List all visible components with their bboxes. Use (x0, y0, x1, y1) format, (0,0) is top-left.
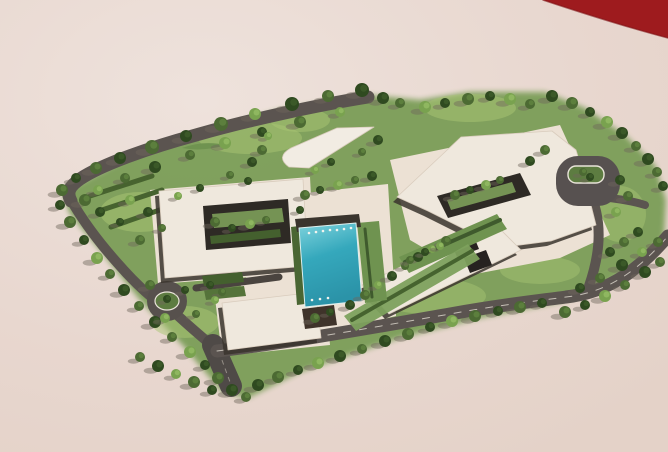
tree-highlight (662, 182, 667, 187)
tree-highlight (409, 257, 413, 261)
tree-highlight (659, 258, 664, 263)
site-plan-canvas (0, 0, 668, 452)
sunbed-dot (315, 231, 318, 234)
tree-highlight (83, 236, 88, 241)
tree-highlight (529, 157, 534, 162)
tree-highlight (267, 133, 271, 137)
tree-highlight (109, 270, 114, 275)
tree-highlight (61, 186, 67, 192)
tree-highlight (185, 132, 191, 138)
tree-highlight (245, 393, 250, 398)
tree-highlight (119, 219, 123, 223)
tree-highlight (229, 172, 233, 176)
tree-highlight (161, 225, 165, 229)
tree-highlight (619, 176, 624, 181)
tree-highlight (231, 386, 237, 392)
tree-highlight (361, 345, 366, 350)
tree-highlight (221, 289, 225, 293)
tree-highlight (497, 307, 502, 312)
tree-highlight (304, 191, 309, 196)
tree-highlight (429, 323, 434, 328)
tree-highlight (329, 309, 333, 313)
tree-highlight (489, 92, 494, 97)
tree-highlight (604, 292, 610, 298)
tree-highlight (354, 177, 358, 181)
tree-highlight (139, 236, 144, 241)
tree-highlight (589, 174, 593, 178)
sunbed-dot (327, 297, 330, 300)
sunbed-dot (350, 227, 353, 230)
tree-highlight (551, 92, 557, 98)
tree-highlight (96, 254, 102, 260)
tree-highlight (339, 108, 344, 113)
sunbed-dot (319, 298, 322, 301)
sunbed-dot (343, 228, 346, 231)
sunbed-dot (308, 232, 311, 235)
tree-highlight (474, 312, 480, 318)
tree-highlight (261, 146, 266, 151)
tree-highlight (59, 201, 64, 206)
tree-highlight (384, 337, 390, 343)
tree-highlight (150, 142, 157, 149)
tree-highlight (337, 181, 342, 186)
tree-highlight (382, 94, 388, 100)
master-plan-image (0, 0, 668, 452)
tree-highlight (485, 181, 490, 186)
tree-highlight (615, 208, 620, 213)
tree-highlight (123, 286, 129, 292)
tree-highlight (217, 374, 223, 380)
tree-highlight (467, 95, 473, 101)
tree-highlight (579, 284, 584, 289)
tree-highlight (175, 370, 180, 375)
tree-highlight (621, 129, 627, 135)
tree-highlight (361, 149, 365, 153)
sunbed-dot (329, 229, 332, 232)
tree-highlight (195, 311, 199, 315)
tree-highlight (249, 220, 254, 225)
tree-highlight (319, 187, 323, 191)
tree-highlight (371, 172, 376, 177)
tree-highlight (184, 287, 188, 291)
tree-highlight (99, 208, 104, 213)
tree-highlight (529, 100, 534, 105)
tree-highlight (424, 103, 430, 109)
tree-highlight (364, 291, 369, 296)
tree-highlight (95, 164, 101, 170)
tree-highlight (265, 217, 269, 221)
swimming-pool (299, 223, 362, 307)
tree-highlight (399, 99, 404, 104)
tree-highlight (231, 225, 235, 229)
tree-highlight (214, 218, 219, 223)
tree-highlight (606, 118, 612, 124)
tree-highlight (75, 174, 80, 179)
sunbed-dot (336, 229, 339, 232)
tree-highlight (635, 142, 640, 147)
tree-highlight (360, 85, 367, 92)
tree-highlight (193, 378, 199, 384)
tree-highlight (204, 361, 209, 366)
tree-highlight (211, 386, 216, 391)
tree-highlight (564, 308, 570, 314)
tree-highlight (254, 110, 260, 116)
tree-highlight (621, 261, 627, 267)
tree-highlight (189, 151, 194, 156)
tree-highlight (377, 282, 381, 286)
tree-highlight (124, 174, 129, 179)
tree-highlight (166, 296, 170, 300)
tree-highlight (154, 163, 160, 169)
tree-highlight (277, 373, 283, 379)
tree-highlight (209, 282, 213, 286)
tree-highlight (541, 299, 546, 304)
tree-highlight (444, 99, 449, 104)
tree-highlight (582, 169, 586, 173)
tree-highlight (469, 187, 473, 191)
tree-highlight (657, 238, 662, 243)
tree-highlight (499, 177, 503, 181)
tree-highlight (157, 362, 163, 368)
tree-highlight (314, 314, 319, 319)
tree-highlight (454, 191, 459, 196)
tree-highlight (224, 139, 230, 145)
tree-highlight (119, 154, 125, 160)
tree-highlight (637, 228, 642, 233)
tree-highlight (299, 207, 303, 211)
tree-highlight (589, 108, 594, 113)
tree-highlight (656, 168, 661, 173)
tree-highlight (377, 136, 382, 141)
sunbed-dot (322, 230, 325, 233)
tree-highlight (129, 196, 134, 201)
tree-highlight (509, 95, 515, 101)
tree-highlight (84, 196, 90, 202)
tree-highlight (544, 146, 549, 151)
tree-highlight (609, 248, 614, 253)
tree-highlight (251, 158, 256, 163)
tree-highlight (257, 381, 263, 387)
tree-highlight (247, 178, 251, 182)
tree-highlight (451, 317, 457, 323)
tree-highlight (644, 268, 650, 274)
tree-highlight (214, 297, 218, 301)
tree-highlight (641, 248, 646, 253)
tree-highlight (391, 272, 396, 277)
tree-highlight (314, 167, 318, 171)
tree-highlight (627, 192, 632, 197)
tree-highlight (439, 243, 443, 247)
tree-highlight (424, 249, 428, 253)
tree-highlight (647, 155, 653, 161)
tree-highlight (290, 99, 297, 106)
tree-highlight (164, 314, 169, 319)
tree-highlight (330, 159, 334, 163)
tree-highlight (139, 353, 144, 358)
tree-highlight (624, 281, 629, 286)
tree-highlight (69, 218, 75, 224)
tree-highlight (327, 92, 333, 98)
tree-highlight (219, 119, 226, 126)
tree-highlight (599, 274, 604, 279)
tree-highlight (349, 301, 354, 306)
tree-highlight (149, 281, 154, 286)
tree-highlight (138, 302, 143, 307)
tree-highlight (584, 301, 589, 306)
scene-layers (0, 0, 668, 452)
tree-highlight (445, 237, 450, 242)
tree-highlight (571, 99, 577, 105)
sunbed-dot (311, 299, 314, 302)
tree-highlight (177, 193, 181, 197)
tree-highlight (261, 128, 266, 133)
tree-highlight (407, 330, 413, 336)
tree-highlight (623, 238, 628, 243)
tree-highlight (317, 359, 323, 365)
tree-highlight (97, 186, 102, 191)
tree-highlight (171, 333, 176, 338)
tree-highlight (299, 118, 305, 124)
tree-highlight (189, 348, 195, 354)
tree-highlight (147, 208, 152, 213)
tree-highlight (339, 352, 345, 358)
tree-highlight (297, 366, 302, 371)
tree-highlight (519, 303, 525, 309)
tree-highlight (199, 185, 203, 189)
